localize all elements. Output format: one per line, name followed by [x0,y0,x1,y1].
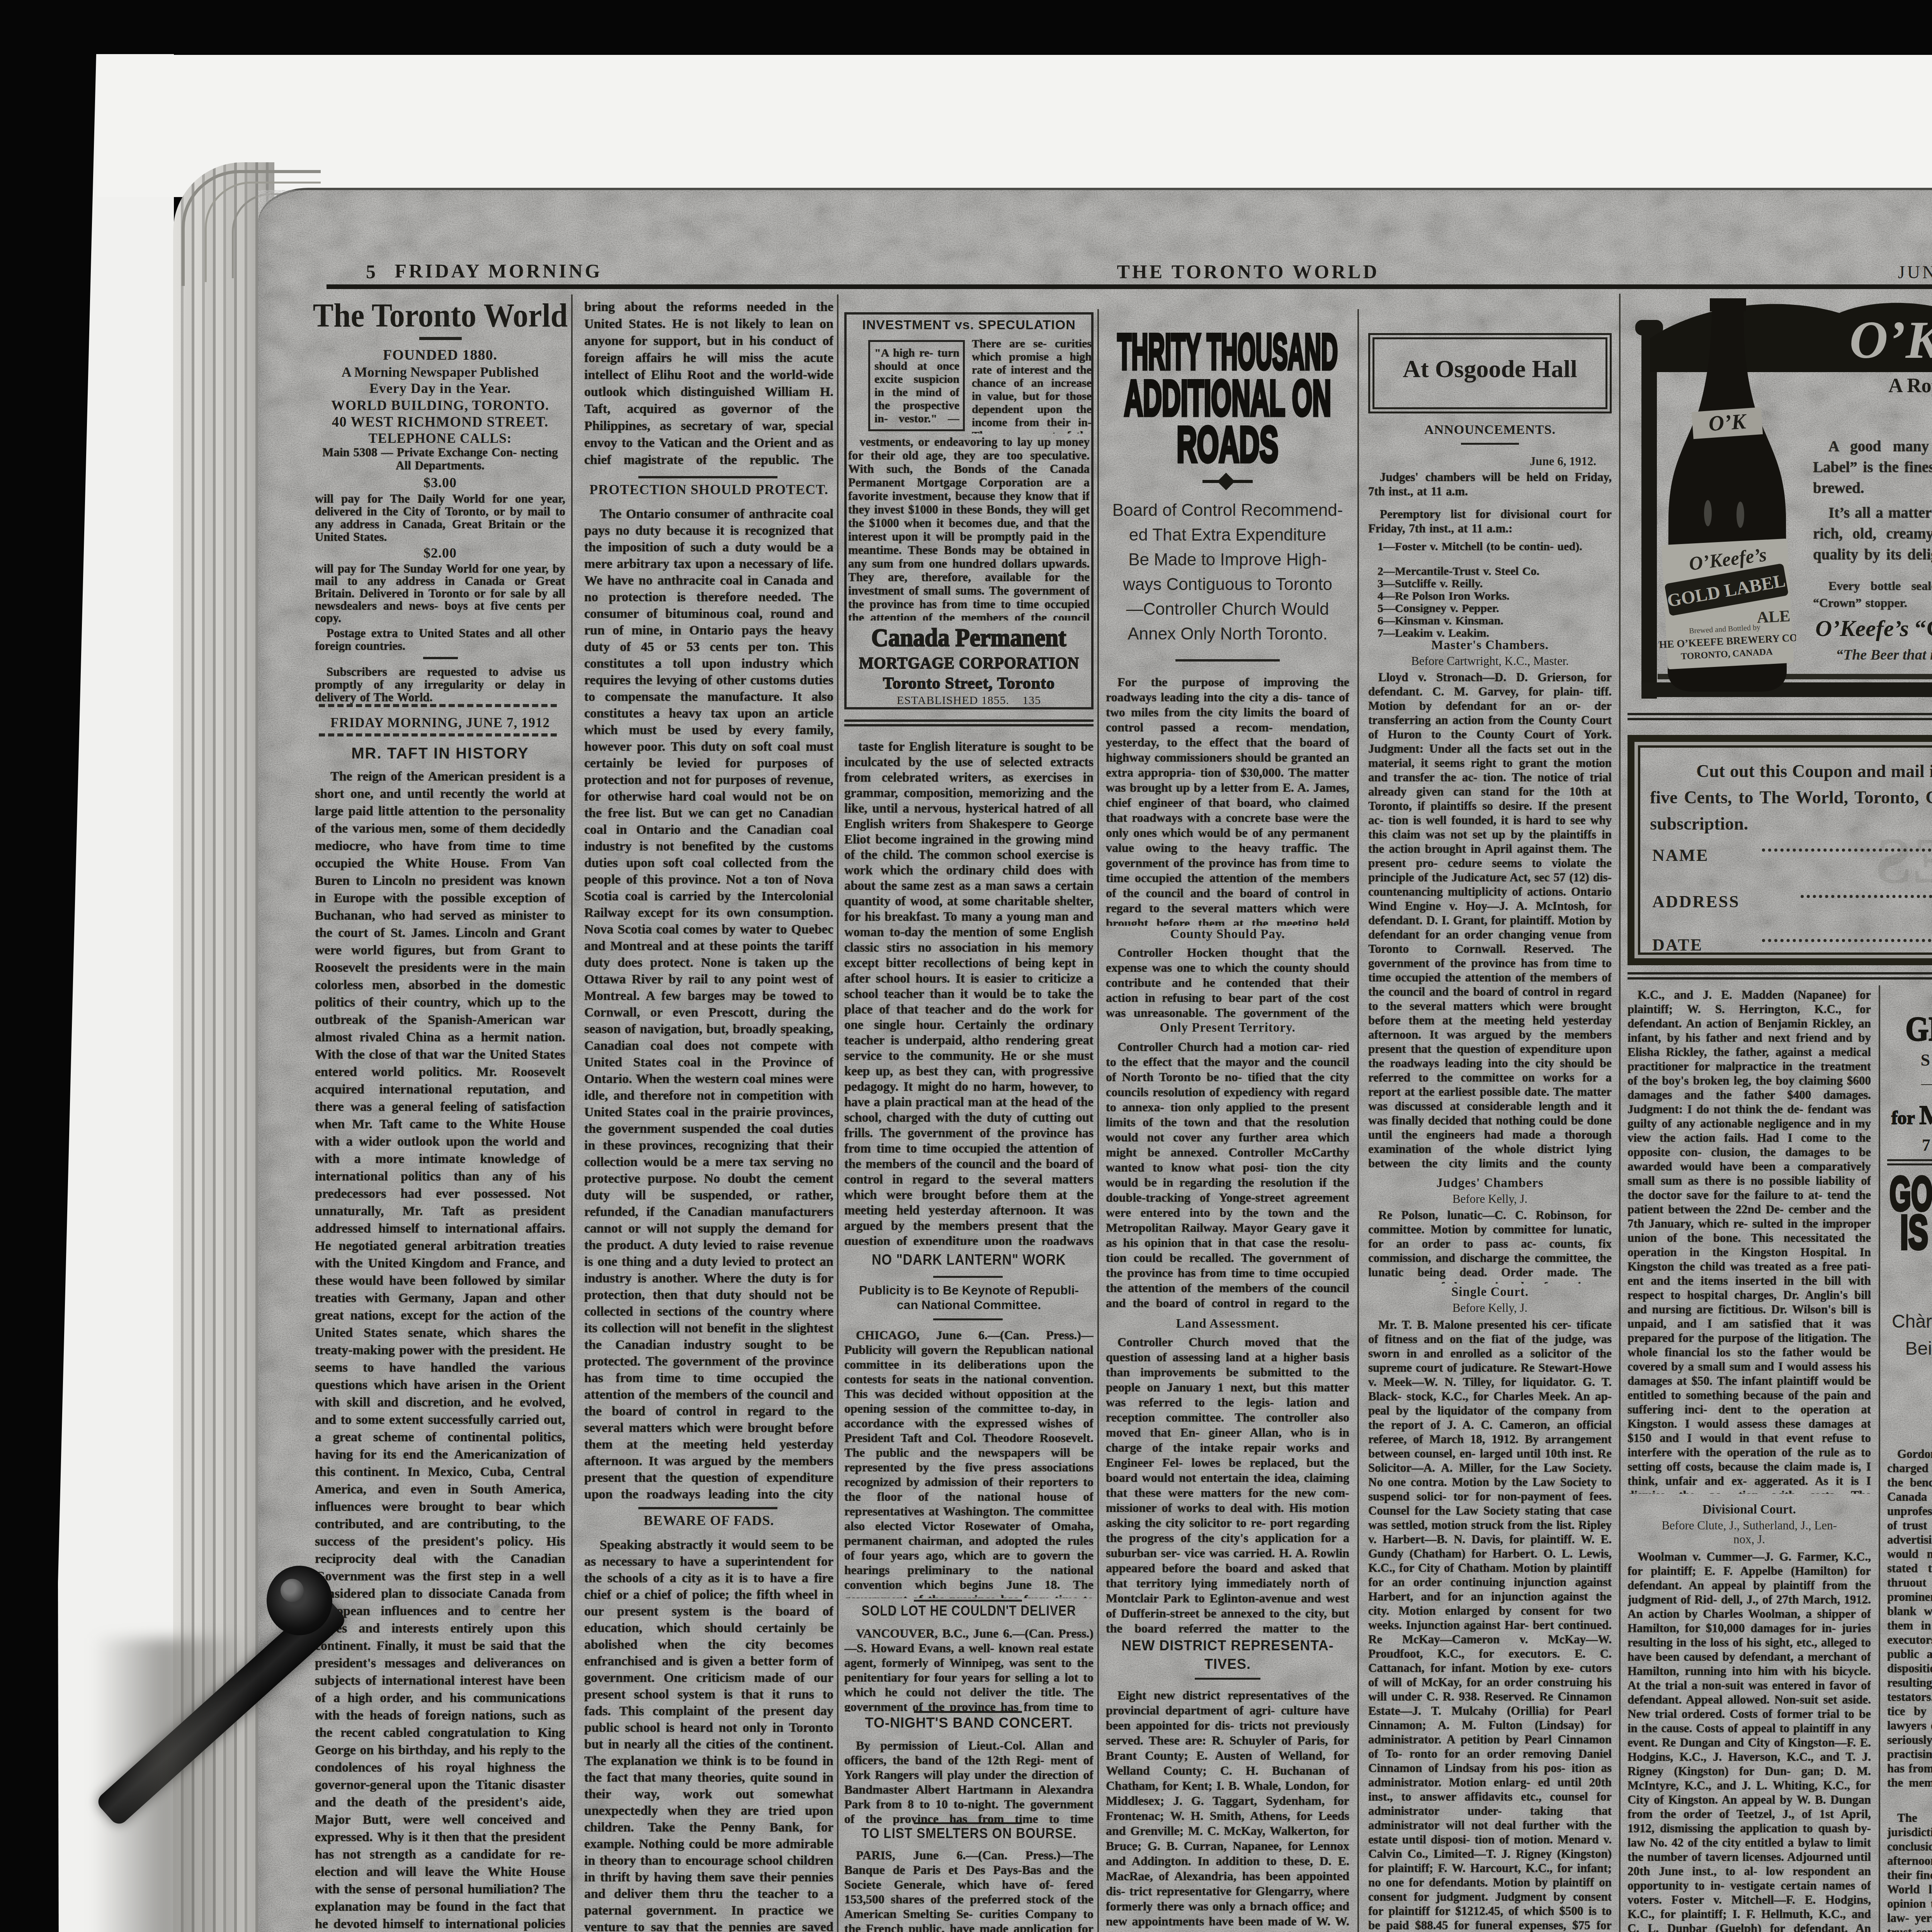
svg-text:O’K: O’K [1849,310,1932,369]
svg-text:ALE: ALE [1757,607,1791,626]
svg-text:O’K: O’K [1708,409,1748,435]
